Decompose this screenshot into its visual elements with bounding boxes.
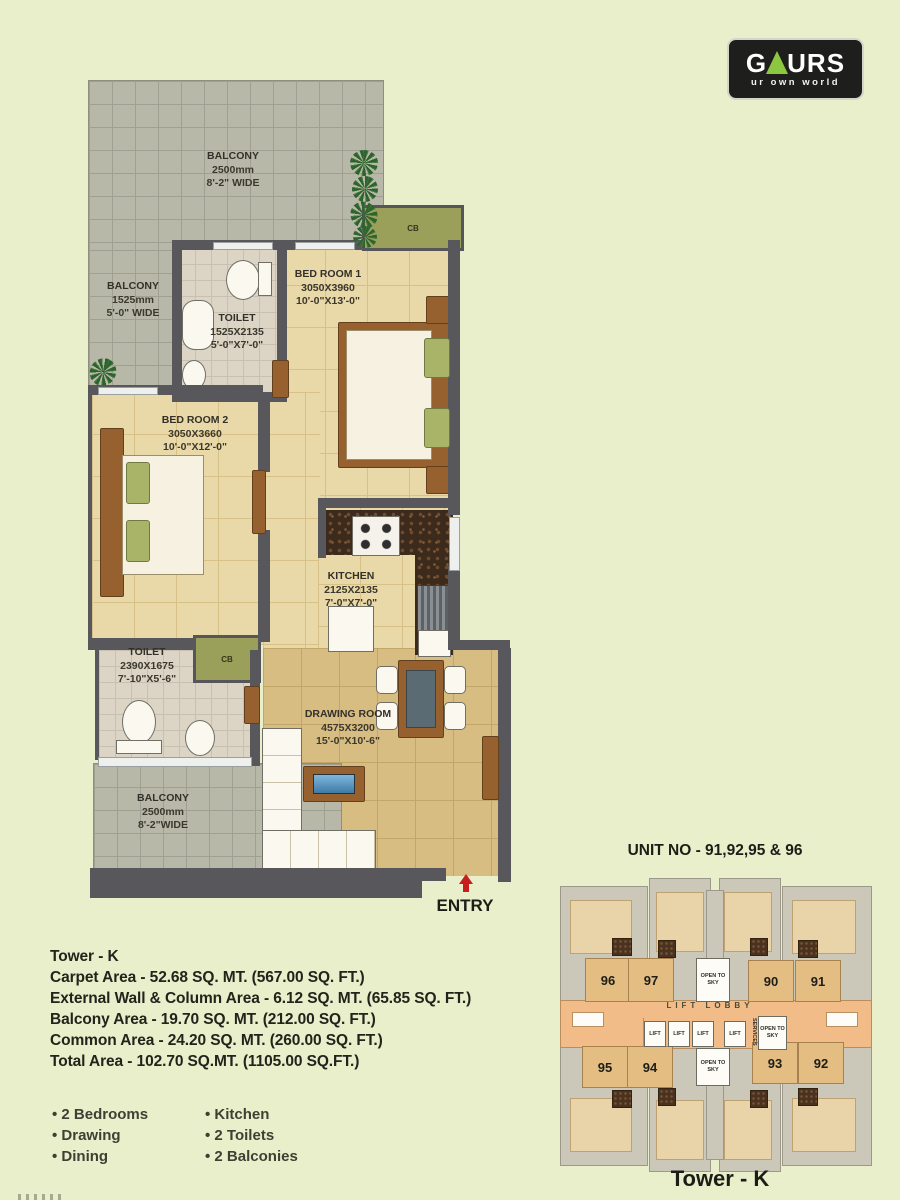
wall: [90, 868, 422, 898]
entry-arrow-icon: [459, 874, 473, 884]
wall: [498, 648, 511, 882]
toilet2-door: [244, 686, 260, 724]
window: [213, 242, 273, 250]
unit-91: 91: [795, 960, 841, 1002]
keyplan-room: [656, 1100, 704, 1160]
entry-door: [482, 736, 499, 800]
wall: [422, 868, 446, 881]
wall: [172, 250, 182, 402]
sink-drainboard: [417, 585, 451, 632]
sofa-horizontal: [262, 830, 376, 870]
plant-icon: [350, 150, 378, 176]
keyplan-kitchen: [658, 1088, 676, 1106]
window: [295, 242, 355, 250]
lift-box: LIFT: [724, 1021, 746, 1047]
dining-table-top: [406, 670, 436, 728]
common-area-line: Common Area - 24.20 SQ. MT. (260.00 SQ. …: [50, 1030, 383, 1051]
tower-name: Tower - K: [50, 946, 119, 967]
washbasin-icon: [185, 720, 215, 756]
services-label: SERVICES: [746, 1016, 757, 1048]
total-area-line: Total Area - 102.70 SQ.MT. (1105.00 SQ.F…: [50, 1051, 359, 1072]
bed2-pillow: [126, 462, 150, 504]
unit-90: 90: [748, 960, 794, 1002]
drawing-room-label: DRAWING ROOM 4575X3200 15'-0"X10'-6": [288, 708, 408, 749]
unit-97: 97: [628, 958, 674, 1002]
wc-icon: [226, 260, 260, 300]
logo-mountain-icon: [766, 51, 788, 74]
kitchen-label: KITCHEN 2125X2135 7'-0"X7'-0": [301, 570, 401, 611]
unit-92: 92: [798, 1042, 844, 1084]
unit-95: 95: [582, 1046, 628, 1088]
lobby-white-patch: [826, 1012, 858, 1027]
bedroom2-door: [252, 470, 266, 534]
bed1-pillow: [424, 338, 450, 378]
cupboard-label: CB: [221, 655, 233, 664]
bedroom2-label: BED ROOM 2 3050X3660 10'-0"X12'-0": [135, 414, 255, 455]
lift-lobby-label: LIFT LOBBY: [630, 1001, 790, 1010]
feature-kitchen: • Kitchen: [205, 1104, 269, 1125]
bedroom1-label: BED ROOM 1 3050X3960 10'-0"X13'-0": [268, 268, 388, 309]
bed1-mattress: [346, 330, 432, 460]
keyplan-kitchen: [750, 938, 768, 956]
keyplan-title: UNIT NO - 91,92,95 & 96: [565, 842, 865, 860]
open-to-sky-box: OPEN TO SKY: [696, 1048, 730, 1086]
unit-96: 96: [585, 958, 631, 1002]
carpet-area-line: Carpet Area - 52.68 SQ. MT. (567.00 SQ. …: [50, 967, 365, 988]
entry-arrow-stem: [463, 884, 469, 892]
wall: [258, 392, 270, 472]
tv-screen: [313, 774, 355, 794]
wc-base: [116, 740, 162, 754]
wall: [250, 650, 260, 688]
wall: [448, 566, 460, 650]
bed2-headboard: [100, 428, 124, 597]
open-to-sky-box: OPEN TO SKY: [696, 958, 730, 1002]
wc-icon: [122, 700, 156, 744]
balcony-left-label: BALCONY 1525mm 5'-0" WIDE: [93, 280, 173, 321]
passage-floor: [263, 392, 320, 655]
lobby-white-patch: [572, 1012, 604, 1027]
unit-94: 94: [627, 1046, 673, 1088]
keyplan-kitchen: [612, 1090, 632, 1108]
feature-dining: • Dining: [52, 1146, 108, 1167]
edge-artifact: [18, 1194, 66, 1200]
feature-balconies: • 2 Balconies: [205, 1146, 298, 1167]
keyplan-room: [724, 1100, 772, 1160]
logo-text-left: G: [746, 51, 767, 75]
external-wall-area-line: External Wall & Column Area - 6.12 SQ. M…: [50, 988, 471, 1009]
dining-chair: [376, 666, 398, 694]
kitchen-cabinet: [328, 606, 374, 652]
wall: [318, 508, 326, 558]
lift-box: LIFT: [668, 1021, 690, 1047]
cupboard-label: CB: [407, 224, 419, 233]
window: [449, 517, 460, 571]
wall: [448, 240, 460, 515]
lift-box: LIFT: [644, 1021, 666, 1047]
keyplan-caption: Tower - K: [600, 1166, 840, 1192]
toilet1-label: TOILET 1525X2135 5'-0"X7'-0": [187, 312, 287, 353]
feature-drawing: • Drawing: [52, 1125, 121, 1146]
gaurs-logo: G URS ur own world: [727, 38, 864, 100]
sink-icon: [418, 630, 451, 657]
keyplan-room: [792, 1098, 856, 1152]
bed1-pillow: [424, 408, 450, 448]
balcony-area-line: Balcony Area - 19.70 SQ. MT. (212.00 SQ.…: [50, 1009, 376, 1030]
balcony-bottom-label: BALCONY 2500mm 8'-2"WIDE: [123, 792, 203, 833]
wall: [258, 530, 270, 642]
open-to-sky-box: OPEN TO SKY: [758, 1016, 787, 1050]
toilet1-door: [272, 360, 289, 398]
keyplan-kitchen: [750, 1090, 768, 1108]
dining-chair: [444, 666, 466, 694]
bed2-pillow: [126, 520, 150, 562]
window: [98, 757, 252, 767]
keyplan-kitchen: [798, 940, 818, 958]
feature-toilets: • 2 Toilets: [205, 1125, 274, 1146]
logo-text-right: URS: [787, 51, 845, 75]
balcony-top-label: BALCONY 2500mm 8'-2" WIDE: [163, 150, 303, 191]
feature-bedrooms: • 2 Bedrooms: [52, 1104, 148, 1125]
wall: [318, 498, 455, 508]
lift-box: LIFT: [692, 1021, 714, 1047]
dining-chair: [444, 702, 466, 730]
keyplan-kitchen: [612, 938, 632, 956]
page-background: G URS ur own world CB CB: [0, 0, 900, 1200]
logo-tagline: ur own world: [751, 77, 840, 88]
keyplan-kitchen: [798, 1088, 818, 1106]
entry-label: ENTRY: [425, 896, 505, 916]
window: [98, 387, 158, 395]
stove-icon: [352, 516, 400, 556]
keyplan-kitchen: [658, 940, 676, 958]
toilet2-label: TOILET 2390X1675 7'-10"X5'-6": [97, 646, 197, 687]
